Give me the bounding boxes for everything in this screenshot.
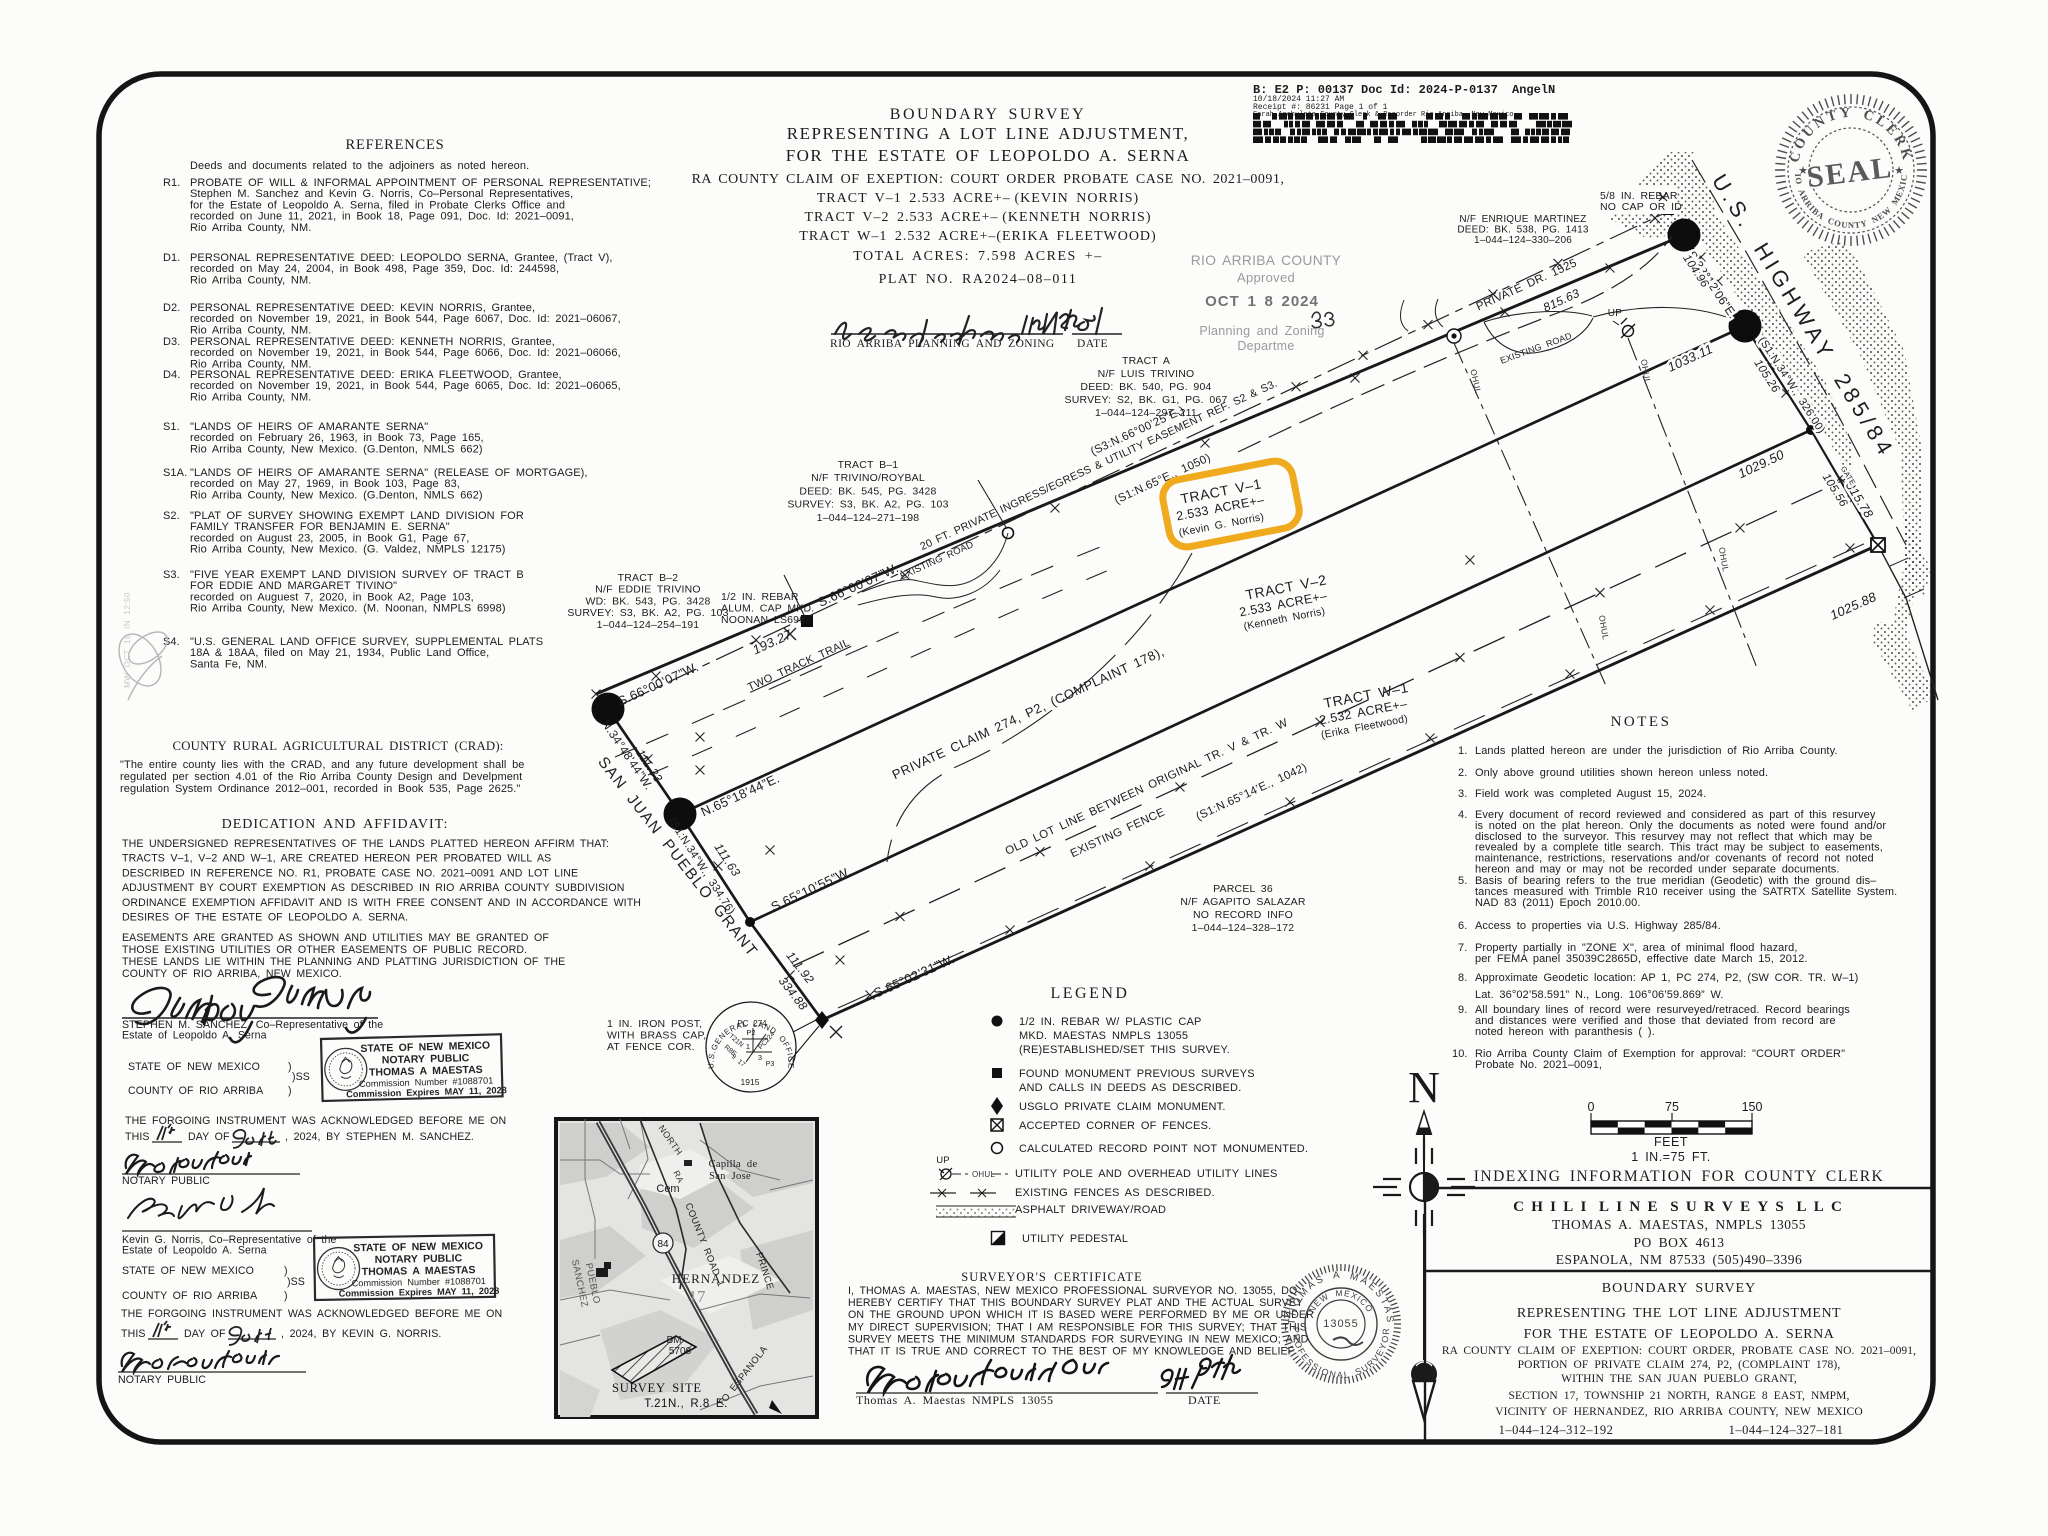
svg-text:9 17: 9 17 <box>730 1053 747 1069</box>
svg-text:): ) <box>288 1085 292 1097</box>
svg-text:COUNTY OF RIO ARRIBA: COUNTY OF RIO ARRIBA <box>128 1085 264 1097</box>
svg-text:THESE LANDS LIE WITHIN THE: THESE LANDS LIE WITHIN THE PLANNING AND … <box>122 956 565 968</box>
svg-text:REPRESENTING A LOT LINE AD: REPRESENTING A LOT LINE ADJUSTMENT, <box>787 124 1189 143</box>
svg-text:PC224: PC224 <box>757 1031 776 1051</box>
svg-text:EXISTING FENCES AS DESCRIBE: EXISTING FENCES AS DESCRIBED. <box>1015 1187 1215 1199</box>
svg-text:Thomas A. Maestas NMPLS: Thomas A. Maestas NMPLS 13055 <box>856 1393 1054 1407</box>
svg-text:1–044–124–254–191: 1–044–124–254–191 <box>597 619 700 631</box>
svg-text:Estate of Leopoldo A. Sern: Estate of Leopoldo A. Serna <box>122 1245 267 1257</box>
svg-text:MKD. MAESTAS NMPLS 13055: MKD. MAESTAS NMPLS 13055 <box>1019 1030 1188 1042</box>
svg-text:Capilla de: Capilla de <box>709 1159 758 1170</box>
svg-text:NAD 83 (2011) Epoch 2010.0: NAD 83 (2011) Epoch 2010.00. <box>1475 897 1640 909</box>
svg-text:recorded on May 27, 1969,: recorded on May 27, 1969, in Book 103, P… <box>190 478 460 490</box>
svg-text:MY DIRECT SUPERVISION; THAT: MY DIRECT SUPERVISION; THAT I AM RESPONS… <box>848 1321 1307 1333</box>
svg-text:PROBATE OF WILL & INFORMAL: PROBATE OF WILL & INFORMAL APPOINTMENT O… <box>190 177 651 189</box>
svg-text:COUNTY OF RIO ARRIBA: COUNTY OF RIO ARRIBA <box>122 1290 258 1302</box>
svg-text:75: 75 <box>1665 1100 1679 1114</box>
svg-text:Rio Arriba County, NM.: Rio Arriba County, NM. <box>190 324 311 336</box>
svg-text:THE UNDERSIGNED REPRESENTATI: THE UNDERSIGNED REPRESENTATIVES OF THE L… <box>122 838 609 850</box>
svg-text:, 2024, BY KEVIN G. NORRI: , 2024, BY KEVIN G. NORRIS. <box>281 1328 441 1340</box>
svg-text:Planning and Zoning: Planning and Zoning <box>1199 324 1324 338</box>
svg-text:Approved: Approved <box>1237 270 1295 285</box>
svg-text:SURVEY: S3, BK. A2, PG. 1: SURVEY: S3, BK. A2, PG. 103 <box>567 607 728 619</box>
svg-text:SURVEY SITE: SURVEY SITE <box>612 1381 702 1395</box>
svg-text:S.65°10’55”W.: S.65°10’55”W. <box>768 864 853 915</box>
svg-text:N/F AGAPITO SALAZAR: N/F AGAPITO SALAZAR <box>1180 896 1306 908</box>
svg-text:"LANDS OF HEIRS OF AMARANT: "LANDS OF HEIRS OF AMARANTE SERNA" (RELE… <box>190 467 588 479</box>
svg-text:STATE OF NEW MEXICO: STATE OF NEW MEXICO <box>128 1061 260 1073</box>
svg-text:FOR THE ESTATE OF LEOPOLDO: FOR THE ESTATE OF LEOPOLDO A. SERNA <box>1524 1327 1835 1342</box>
svg-text:N/F TRIVINO/ROYBAL: N/F TRIVINO/ROYBAL <box>811 472 925 484</box>
svg-text:DESIRES OF THE ESTATE OF: DESIRES OF THE ESTATE OF LEOPOLDO A. SER… <box>122 912 408 924</box>
svg-text:1/2 IN. REBAR: 1/2 IN. REBAR <box>721 591 799 603</box>
svg-text:Estate of Leopoldo A. Sern: Estate of Leopoldo A. Serna <box>122 1030 267 1042</box>
svg-text:DESCRIBED IN REFERENCE NO.: DESCRIBED IN REFERENCE NO. R1, PROBATE C… <box>122 867 578 879</box>
svg-text:1–044–124–327–181: 1–044–124–327–181 <box>1729 1423 1844 1437</box>
svg-text:"LANDS OF HEIRS OF AMARANT: "LANDS OF HEIRS OF AMARANTE SERNA" <box>190 421 428 433</box>
svg-text:REPRESENTING THE LOT LINE: REPRESENTING THE LOT LINE ADJUSTMENT <box>1517 1306 1841 1321</box>
svg-text:PERSONAL REPRESENTATIVE DEED: PERSONAL REPRESENTATIVE DEED: LEOPOLDO S… <box>190 252 613 264</box>
svg-text:Lands platted hereon are u: Lands platted hereon are under the juris… <box>1475 745 1838 757</box>
svg-text:NOTES: NOTES <box>1611 714 1672 730</box>
svg-text:17: 17 <box>689 1287 707 1306</box>
svg-text:PARCEL 36: PARCEL 36 <box>1213 883 1273 895</box>
svg-text:S1A.: S1A. <box>163 467 187 479</box>
svg-text:THIS: THIS <box>125 1131 150 1143</box>
svg-text:D3.: D3. <box>163 336 180 348</box>
svg-text:TRACT V–1 2.533 ACRE+– (K: TRACT V–1 2.533 ACRE+– (KEVIN NORRIS) <box>817 191 1139 206</box>
svg-text:VICINITY OF HERNANDEZ, RIO: VICINITY OF HERNANDEZ, RIO ARRIBA COUNTY… <box>1495 1406 1862 1418</box>
svg-text:150: 150 <box>1742 1100 1763 1114</box>
svg-text:TRACT A: TRACT A <box>1122 355 1170 367</box>
svg-text:BOUNDARY SURVEY: BOUNDARY SURVEY <box>890 106 1086 123</box>
svg-text:REFERENCES: REFERENCES <box>345 137 444 153</box>
svg-text:"The entire county lies wi: "The entire county lies with the CRAD, a… <box>120 759 525 771</box>
svg-text:ADJUSTMENT BY COURT EXEMPTI: ADJUSTMENT BY COURT EXEMPTION AS DESCRIB… <box>122 882 624 894</box>
svg-text:STATE OF NEW MEXICO: STATE OF NEW MEXICO <box>122 1265 254 1277</box>
svg-text:TRACTS V–1, V–2 AND W–1,: TRACTS V–1, V–2 AND W–1, ARE CREATED HER… <box>122 853 551 865</box>
svg-text:13055: 13055 <box>1323 1318 1359 1330</box>
svg-text:AT FENCE COR.: AT FENCE COR. <box>607 1041 695 1053</box>
svg-text:CALCULATED RECORD POINT NOT: CALCULATED RECORD POINT NOT MONUMENTED. <box>1019 1143 1308 1155</box>
svg-text:SECTION 17, TOWNSHIP 21 NO: SECTION 17, TOWNSHIP 21 NORTH, RANGE 8 E… <box>1509 1390 1850 1402</box>
svg-text:DEED: BK. 545, PG. 3428: DEED: BK. 545, PG. 3428 <box>799 485 936 497</box>
svg-text:ACCEPTED CORNER OF FENCES.: ACCEPTED CORNER OF FENCES. <box>1019 1120 1211 1132</box>
svg-text:MW OCT 18 IN 12:50: MW OCT 18 IN 12:50 <box>123 592 132 688</box>
svg-text:3.: 3. <box>1458 788 1467 800</box>
svg-text:S.66°00’07”W.: S.66°00’07”W. <box>815 560 901 610</box>
svg-text:PLAT NO. RA2024–08–011: PLAT NO. RA2024–08–011 <box>879 272 1078 287</box>
svg-text:ALUM. CAP MKD.: ALUM. CAP MKD. <box>721 603 814 615</box>
svg-text:DAY OF: DAY OF <box>188 1131 230 1143</box>
svg-text:DAY OF: DAY OF <box>184 1328 226 1340</box>
svg-text:UTILITY POLE AND OVERHEAD: UTILITY POLE AND OVERHEAD UTILITY LINES <box>1015 1168 1278 1180</box>
svg-text:recorded on November 19, 2: recorded on November 19, 2021, in Book 5… <box>190 380 621 392</box>
svg-text:RA COUNTY CLAIM OF EXEPTIO: RA COUNTY CLAIM OF EXEPTION: COURT ORDER… <box>692 172 1285 187</box>
svg-text:"U.S. GENERAL LAND OFFICE: "U.S. GENERAL LAND OFFICE SURVEY, SUPPLE… <box>190 636 543 648</box>
svg-text:TRACT V–2 2.533 ACRE+– (K: TRACT V–2 2.533 ACRE+– (KENNETH NORRIS) <box>804 210 1151 225</box>
svg-text:2.: 2. <box>1458 767 1467 779</box>
svg-text:per FEMA panel 35039C2865D,: per FEMA panel 35039C2865D, effective da… <box>1475 953 1808 965</box>
svg-text:D2.: D2. <box>163 302 180 314</box>
svg-text:Probate No. 2021–0091,: Probate No. 2021–0091, <box>1475 1059 1602 1071</box>
svg-text:1/2 IN. REBAR W/ PLASTIC: 1/2 IN. REBAR W/ PLASTIC CAP <box>1019 1016 1202 1028</box>
svg-text:S3.: S3. <box>163 569 180 581</box>
svg-text:regulated per section 4.01: regulated per section 4.01 of the Rio Ar… <box>120 771 522 783</box>
svg-text:recorded on November 19, 2: recorded on November 19, 2021, in Book 5… <box>190 313 621 325</box>
svg-text:PERSONAL REPRESENTATIVE DEED: PERSONAL REPRESENTATIVE DEED: KENNETH NO… <box>190 336 555 348</box>
svg-text:1–044–124–330–206: 1–044–124–330–206 <box>1474 235 1572 246</box>
svg-text:AND CALLS IN DEEDS AS DES: AND CALLS IN DEEDS AS DESCRIBED. <box>1019 1082 1241 1094</box>
svg-text:N.65°18’44”E.: N.65°18’44”E. <box>698 770 782 819</box>
svg-text:PO BOX 4613: PO BOX 4613 <box>1633 1235 1724 1250</box>
svg-text:Rio Arriba County, NM.: Rio Arriba County, NM. <box>190 391 311 403</box>
svg-text:recorded on November 19, 2: recorded on November 19, 2021, in Book 5… <box>190 347 621 359</box>
svg-text:PERSONAL REPRESENTATIVE DEED: PERSONAL REPRESENTATIVE DEED: ERIKA FLEE… <box>190 369 562 381</box>
svg-text:HERNANDEZ: HERNANDEZ <box>672 1271 760 1286</box>
svg-text:ESPANOLA, NM 87533 (505)490: ESPANOLA, NM 87533 (505)490–3396 <box>1556 1252 1803 1267</box>
svg-text:, 2024, BY STEPHEN M. SAN: , 2024, BY STEPHEN M. SANCHEZ. <box>285 1131 474 1143</box>
svg-text:LEGEND: LEGEND <box>1051 985 1130 1002</box>
svg-text:Approximate Geodetic locatio: Approximate Geodetic location: AP 1, PC … <box>1475 972 1858 984</box>
svg-text:SEAL: SEAL <box>1805 151 1895 194</box>
svg-text:EXISTING ROAD: EXISTING ROAD <box>1499 330 1574 365</box>
svg-text:for the Estate of Leopoldo: for the Estate of Leopoldo A. Serna, fil… <box>190 199 565 211</box>
svg-text:PERSONAL REPRESENTATIVE DEED: PERSONAL REPRESENTATIVE DEED: KEVIN NORR… <box>190 302 535 314</box>
svg-text:SAN JUAN PUEBLO GRANT: SAN JUAN PUEBLO GRANT <box>594 754 761 961</box>
svg-text:BM: BM <box>667 1335 682 1346</box>
svg-text:NOTARY PUBLIC: NOTARY PUBLIC <box>122 1175 210 1187</box>
svg-text:UP: UP <box>1608 308 1623 319</box>
svg-text:84: 84 <box>657 1239 669 1250</box>
svg-text:FOR EDDIE AND MARGARET TIV: FOR EDDIE AND MARGARET TIVINO" <box>190 580 397 592</box>
svg-text:DEED: BK. 540, PG. 904: DEED: BK. 540, PG. 904 <box>1080 381 1211 393</box>
svg-text:Stephen M. Sanchez and Kev: Stephen M. Sanchez and Kevin G. Norris, … <box>190 188 573 200</box>
svg-text:(S1:N.65°14’E., 1042): (S1:N.65°14’E., 1042) <box>1194 761 1309 823</box>
svg-text:1915: 1915 <box>741 1077 760 1087</box>
svg-text:FEET: FEET <box>1654 1135 1688 1149</box>
svg-text:RIO ARRIBA PLANNING AND ZO: RIO ARRIBA PLANNING AND ZONING <box>830 338 1055 350</box>
svg-text:193.27: 193.27 <box>750 626 794 657</box>
svg-text:1: 1 <box>746 1042 750 1051</box>
svg-text:TRACT B–1: TRACT B–1 <box>838 459 899 471</box>
svg-text:DEDICATION AND AFFIDAVIT:: DEDICATION AND AFFIDAVIT: <box>222 817 449 832</box>
svg-text:C H I L I L I N E S U R V E: C H I L I L I N E S U R V E Y S L L C <box>1513 1199 1845 1215</box>
svg-text:recorded on February 26, 1: recorded on February 26, 1963, in Book 7… <box>190 432 484 444</box>
svg-text:TRACT B–2: TRACT B–2 <box>618 572 679 584</box>
svg-text:Rio Arriba County, New Mex: Rio Arriba County, New Mexico. (M. Noona… <box>190 603 506 615</box>
svg-text:NO RECORD INFO: NO RECORD INFO <box>1193 909 1293 921</box>
svg-text:UP: UP <box>936 1155 950 1166</box>
svg-text:PORTION OF PRIVATE CLAIM 2: PORTION OF PRIVATE CLAIM 274, P2, (COMPL… <box>1518 1359 1841 1371</box>
svg-text:FOR THE ESTATE OF LEOPOLDO: FOR THE ESTATE OF LEOPOLDO A. SERNA <box>786 146 1191 165</box>
svg-text:Rio Arriba County, New Mex: Rio Arriba County, New Mexico. (G. Valde… <box>190 544 506 556</box>
svg-text:1033.11: 1033.11 <box>1665 341 1715 375</box>
svg-text:STATE OF NEW MEXICO: STATE OF NEW MEXICO <box>353 1240 483 1254</box>
svg-text:P3: P3 <box>766 1059 775 1068</box>
svg-text:Access to properties via U: Access to properties via U.S. Highway 28… <box>1475 920 1721 932</box>
svg-text:P2: P2 <box>746 1028 755 1037</box>
svg-text:SURVEY: S3, BK. A2, PG. 1: SURVEY: S3, BK. A2, PG. 103 <box>787 499 948 511</box>
svg-text:N/F ENRIQUE MARTINEZ: N/F ENRIQUE MARTINEZ <box>1459 214 1586 225</box>
svg-text:10.: 10. <box>1452 1048 1468 1060</box>
svg-text:NOTARY PUBLIC: NOTARY PUBLIC <box>118 1374 206 1386</box>
svg-text:PC 274: PC 274 <box>737 1019 767 1028</box>
svg-text:THOMAS A. MAESTAS, NMPLS 1: THOMAS A. MAESTAS, NMPLS 13055 <box>1552 1217 1806 1232</box>
svg-text:UTILITY PEDESTAL: UTILITY PEDESTAL <box>1022 1233 1128 1245</box>
svg-text:1–044–124–271–198: 1–044–124–271–198 <box>817 512 920 524</box>
svg-text:FAMILY TRANSFER FOR BENJAMI: FAMILY TRANSFER FOR BENJAMIN E. SERNA" <box>190 521 450 533</box>
svg-text:I, THOMAS A. MAESTAS, NEW: I, THOMAS A. MAESTAS, NEW MEXICO PROFESS… <box>848 1285 1297 1297</box>
svg-text:9.: 9. <box>1458 1004 1467 1016</box>
svg-text:Deeds and documents related: Deeds and documents related to the adjoi… <box>190 160 529 172</box>
svg-text:Lat. 36°02’58.591” N., L: Lat. 36°02’58.591” N., Long. 106°06’59.8… <box>1475 989 1724 1001</box>
svg-text:COUNTY OF RIO ARRIBA, NEW: COUNTY OF RIO ARRIBA, NEW MEXICO. <box>122 968 342 980</box>
svg-text:FOUND MONUMENT PREVIOUS SUR: FOUND MONUMENT PREVIOUS SURVEYS <box>1019 1068 1255 1080</box>
svg-text:SURVEY MEETS THE MINIMUM S: SURVEY MEETS THE MINIMUM STANDARDS FOR S… <box>848 1333 1309 1345</box>
svg-text:1–044–124–328–172: 1–044–124–328–172 <box>1192 922 1295 934</box>
svg-text:THAT IT IS TRUE AND CORRE: THAT IT IS TRUE AND CORRECT TO THE BEST … <box>848 1346 1296 1358</box>
svg-text:"FIVE YEAR EXEMPT LAND DIV: "FIVE YEAR EXEMPT LAND DIVISION SURVEY O… <box>190 569 524 581</box>
svg-text:)SS: )SS <box>292 1071 310 1083</box>
svg-text:SURVEY: S2, BK. G1, PG. 0: SURVEY: S2, BK. G1, PG. 067 <box>1064 394 1227 406</box>
svg-text:THIS: THIS <box>121 1328 146 1340</box>
svg-text:5.: 5. <box>1458 875 1467 887</box>
svg-text:DATE: DATE <box>1188 1393 1221 1407</box>
svg-text:DEED: BK. 538, PG. 1413: DEED: BK. 538, PG. 1413 <box>1457 225 1589 236</box>
svg-text:USGLO PRIVATE CLAIM MONUMEN: USGLO PRIVATE CLAIM MONUMENT. <box>1019 1101 1226 1113</box>
svg-text:RA COUNTY CLAIM OF EXEPTIO: RA COUNTY CLAIM OF EXEPTION: COURT ORDER… <box>1442 1345 1916 1357</box>
svg-text:TOTAL ACRES: 7.598 ACRES +: TOTAL ACRES: 7.598 ACRES +– <box>853 249 1102 264</box>
svg-text:3: 3 <box>758 1053 762 1062</box>
svg-text:SURVEYOR'S CERTIFICATE: SURVEYOR'S CERTIFICATE <box>961 1270 1142 1284</box>
svg-text:N/F LUIS TRIVINO: N/F LUIS TRIVINO <box>1098 368 1195 380</box>
svg-text:NEW MEXICO: NEW MEXICO <box>1307 1288 1376 1315</box>
svg-text:RIO ARRIBA COUNTY: RIO ARRIBA COUNTY <box>1191 253 1341 268</box>
svg-text:BOUNDARY SURVEY: BOUNDARY SURVEY <box>1602 1281 1756 1296</box>
svg-text:D1.: D1. <box>163 252 180 264</box>
svg-text:Field work was completed A: Field work was completed August 15, 2024… <box>1475 788 1706 800</box>
svg-text:OHUL: OHUL <box>1717 546 1731 572</box>
svg-text:ASPHALT DRIVEWAY/ROAD: ASPHALT DRIVEWAY/ROAD <box>1015 1204 1166 1216</box>
svg-text:1–044–124–312–192: 1–044–124–312–192 <box>1499 1423 1614 1437</box>
svg-text:hereon and may or may not: hereon and may or may not be recorded un… <box>1475 864 1840 876</box>
svg-text:18A & 18AA, filed on May: 18A & 18AA, filed on May 21, 1934, Publi… <box>190 647 489 659</box>
svg-text:Rio Arriba County, New Mex: Rio Arriba County, New Mexico. (G.Denton… <box>190 443 483 455</box>
svg-text:S1.: S1. <box>163 421 180 433</box>
svg-text:WD: BK. 543, PG. 3428: WD: BK. 543, PG. 3428 <box>585 595 710 607</box>
svg-text:815.63: 815.63 <box>1541 286 1582 315</box>
svg-text:EASEMENTS ARE GRANTED AS S: EASEMENTS ARE GRANTED AS SHOWN AND UTILI… <box>122 932 549 944</box>
svg-text:N/F EDDIE TRIVINO: N/F EDDIE TRIVINO <box>595 584 701 596</box>
svg-text:D4.: D4. <box>163 369 180 381</box>
svg-text:OHUL: OHUL <box>972 1170 995 1179</box>
svg-text:"PLAT OF SURVEY SHOWING EX: "PLAT OF SURVEY SHOWING EXEMPT LAND DIVI… <box>190 510 524 522</box>
svg-text:): ) <box>284 1290 288 1302</box>
svg-text:4.: 4. <box>1458 809 1467 821</box>
svg-text:T.21N., R.8 E.: T.21N., R.8 E. <box>644 1398 728 1410</box>
svg-text:Departme: Departme <box>1237 339 1294 353</box>
svg-text:Rio Arriba County, NM.: Rio Arriba County, NM. <box>190 222 311 234</box>
svg-text:noted hereon with paranthes: noted hereon with paranthesis ( ). <box>1475 1026 1655 1038</box>
svg-text:THOSE EXISTING UTILITIES OR: THOSE EXISTING UTILITIES OR OTHER EASEME… <box>122 944 527 956</box>
svg-text:INDEXING INFORMATION FOR CO: INDEXING INFORMATION FOR COUNTY CLERK <box>1474 1168 1885 1185</box>
svg-text:S2.: S2. <box>163 510 180 522</box>
svg-text:PRIVATE CLAIM 274, P2, (CO: PRIVATE CLAIM 274, P2, (COMPLAINT 178), <box>890 644 1167 783</box>
svg-text:ORDINANCE EXEMPTION AFFIDAVI: ORDINANCE EXEMPTION AFFIDAVIT AND IS WIT… <box>122 897 641 909</box>
svg-text:OHUL: OHUL <box>1597 614 1611 640</box>
svg-text:Only above ground utilities: Only above ground utilities shown hereon… <box>1475 767 1768 779</box>
svg-text:NO CAP OR ID: NO CAP OR ID <box>1600 201 1682 213</box>
svg-text:TRACT W–1 2.532 ACRE+–(ER: TRACT W–1 2.532 ACRE+–(ERIKA FLEETWOOD) <box>799 229 1156 244</box>
svg-text:S.65°02’31”W.: S.65°02’31”W. <box>871 951 957 1000</box>
svg-text:Santa Fe, NM.: Santa Fe, NM. <box>190 658 267 670</box>
svg-text:)SS: )SS <box>287 1276 305 1288</box>
svg-text:AngelN: AngelN <box>1512 83 1555 97</box>
svg-text:Rio Arriba County, New Mex: Rio Arriba County, New Mexico. (G.Denton… <box>190 489 483 501</box>
svg-text:7.: 7. <box>1458 942 1467 954</box>
svg-text:1 IN. IRON POST,: 1 IN. IRON POST, <box>607 1018 702 1030</box>
svg-text:OCT 1 8 2024: OCT 1 8 2024 <box>1205 293 1319 310</box>
svg-text:NOONAN LS6998: NOONAN LS6998 <box>721 614 811 626</box>
svg-text:San Jose: San Jose <box>709 1171 751 1182</box>
svg-text:DATE: DATE <box>1077 338 1108 350</box>
svg-text:recorded on August 23, 200: recorded on August 23, 2005, in Book G1,… <box>190 532 469 544</box>
svg-text:111.63: 111.63 <box>711 841 743 879</box>
svg-text:0: 0 <box>1588 1100 1595 1114</box>
svg-text:THE FORGOING INSTRUMENT WAS: THE FORGOING INSTRUMENT WAS ACKNOWLEDGED… <box>121 1308 502 1320</box>
svg-text:recorded on June 11, 2021,: recorded on June 11, 2021, in Book 18, P… <box>190 211 574 223</box>
svg-text:regulation System Ordinance: regulation System Ordinance 2012–001, re… <box>120 783 520 795</box>
svg-text:1 IN.=75 FT.: 1 IN.=75 FT. <box>1631 1150 1710 1164</box>
svg-text:recorded on May 24, 2004,: recorded on May 24, 2004, in Book 498, P… <box>190 263 559 275</box>
svg-text:5708: 5708 <box>669 1346 692 1357</box>
svg-text:WITH BRASS CAP,: WITH BRASS CAP, <box>607 1030 706 1042</box>
svg-text:recorded on Auguest 7, 202: recorded on Auguest 7, 2020, in Book A2,… <box>190 591 474 603</box>
svg-text:OHUL: OHUL <box>1639 358 1653 384</box>
svg-text:Cem: Cem <box>656 1183 679 1195</box>
svg-text:N: N <box>1408 1063 1440 1112</box>
svg-text:1.: 1. <box>1458 745 1467 757</box>
svg-text:(RE)ESTABLISHED/SET THIS SUR: (RE)ESTABLISHED/SET THIS SURVEY. <box>1019 1044 1230 1056</box>
svg-text:WITHIN THE SAN JUAN PUEBLO: WITHIN THE SAN JUAN PUEBLO GRANT, <box>1561 1373 1797 1385</box>
svg-text:6.: 6. <box>1458 920 1467 932</box>
svg-text:R1.: R1. <box>163 177 180 189</box>
svg-text:Rio Arriba County, NM.: Rio Arriba County, NM. <box>190 274 311 286</box>
svg-text:★: ★ <box>1894 165 1904 177</box>
svg-text:THE FORGOING INSTRUMENT WAS: THE FORGOING INSTRUMENT WAS ACKNOWLEDGED… <box>125 1115 506 1127</box>
svg-text:8.: 8. <box>1458 972 1467 984</box>
svg-text:): ) <box>288 1061 292 1073</box>
svg-text:ON THE GROUND UPON WHICH: ON THE GROUND UPON WHICH IT IS BASED WER… <box>848 1309 1314 1321</box>
svg-text:COUNTY RURAL AGRICULTURAL D: COUNTY RURAL AGRICULTURAL DISTRICT (CRAD… <box>172 739 503 753</box>
svg-text:HEREBY CERTIFY THAT THIS B: HEREBY CERTIFY THAT THIS BOUNDARY SURVEY… <box>848 1297 1303 1309</box>
